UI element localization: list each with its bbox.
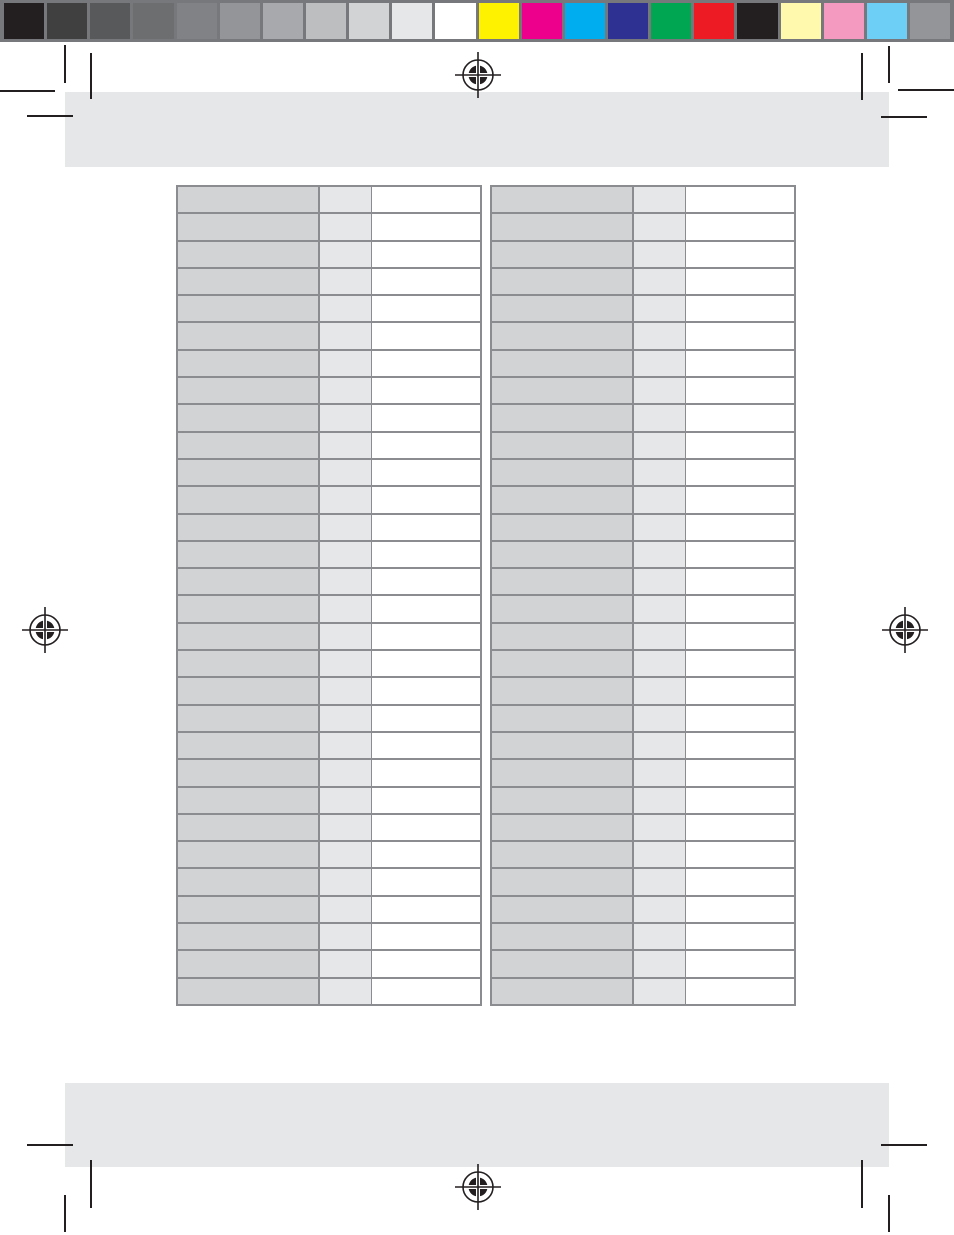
- label-column-cell: [177, 923, 319, 950]
- value-column-cell: [633, 322, 685, 349]
- value-column-cell: [633, 241, 685, 268]
- table-row: [491, 978, 795, 1005]
- label-column-cell: [491, 295, 633, 322]
- label-column-cell: [491, 322, 633, 349]
- value-column-cell: [319, 650, 371, 677]
- table-row: [177, 705, 481, 732]
- table-row: [491, 459, 795, 486]
- table-row: [177, 759, 481, 786]
- label-column-cell: [177, 978, 319, 1005]
- grayscale-swatch-gray-step-11: [435, 3, 475, 39]
- value-column-cell: [319, 459, 371, 486]
- value-column-cell: [319, 732, 371, 759]
- label-column-cell: [177, 268, 319, 295]
- value-column-cell: [319, 568, 371, 595]
- label-column-cell: [491, 677, 633, 704]
- table-row: [491, 950, 795, 977]
- entry-column-cell: [371, 541, 481, 568]
- entry-column-cell: [371, 923, 481, 950]
- table-row: [177, 322, 481, 349]
- entry-column-cell: [371, 186, 481, 213]
- value-column-cell: [633, 732, 685, 759]
- entry-column-cell: [371, 241, 481, 268]
- entry-column-cell: [371, 268, 481, 295]
- label-column-cell: [491, 923, 633, 950]
- entry-column-cell: [685, 541, 795, 568]
- table-row: [491, 268, 795, 295]
- value-column-cell: [319, 404, 371, 431]
- value-column-cell: [319, 295, 371, 322]
- crop-mark: [888, 1195, 890, 1232]
- table-row: [491, 486, 795, 513]
- entry-column-cell: [685, 186, 795, 213]
- table-row: [177, 787, 481, 814]
- table-row: [177, 568, 481, 595]
- label-column-cell: [491, 650, 633, 677]
- entry-column-cell: [685, 241, 795, 268]
- value-column-cell: [633, 377, 685, 404]
- entry-column-cell: [685, 814, 795, 841]
- entry-column-cell: [685, 732, 795, 759]
- label-column-cell: [491, 432, 633, 459]
- label-column-cell: [491, 568, 633, 595]
- table-row: [491, 677, 795, 704]
- value-column-cell: [633, 841, 685, 868]
- entry-column-cell: [371, 432, 481, 459]
- table-row: [491, 841, 795, 868]
- entry-column-cell: [685, 459, 795, 486]
- value-column-cell: [633, 213, 685, 240]
- label-column-cell: [177, 623, 319, 650]
- entry-column-cell: [371, 295, 481, 322]
- value-column-cell: [319, 322, 371, 349]
- crop-mark: [64, 45, 66, 83]
- entry-column-cell: [371, 759, 481, 786]
- entry-column-cell: [685, 787, 795, 814]
- value-column-cell: [633, 787, 685, 814]
- table-row: [177, 241, 481, 268]
- color-swatch-magenta: [522, 3, 562, 39]
- table-row: [491, 514, 795, 541]
- entry-column-cell: [685, 595, 795, 622]
- color-swatch-yellow: [479, 3, 519, 39]
- entry-column-cell: [371, 514, 481, 541]
- entry-column-cell: [685, 896, 795, 923]
- color-swatch-pink: [824, 3, 864, 39]
- table-row: [177, 978, 481, 1005]
- label-column-cell: [177, 950, 319, 977]
- crop-mark: [888, 46, 890, 83]
- value-column-cell: [319, 896, 371, 923]
- label-column-cell: [177, 541, 319, 568]
- entry-column-cell: [371, 732, 481, 759]
- crop-mark: [27, 1144, 73, 1146]
- label-column-cell: [491, 514, 633, 541]
- label-column-cell: [177, 650, 319, 677]
- measurement-table-right: [490, 185, 796, 1006]
- entry-column-cell: [685, 486, 795, 513]
- value-column-cell: [319, 868, 371, 895]
- table-row: [491, 432, 795, 459]
- registration-mark-icon-left: [21, 606, 69, 654]
- label-column-cell: [177, 732, 319, 759]
- footer-placeholder-box: [65, 1083, 889, 1167]
- table-row: [491, 377, 795, 404]
- grayscale-swatch-gray-step-4: [133, 3, 173, 39]
- label-column-cell: [177, 295, 319, 322]
- value-column-cell: [319, 950, 371, 977]
- entry-column-cell: [371, 868, 481, 895]
- label-column-cell: [491, 978, 633, 1005]
- value-column-cell: [633, 404, 685, 431]
- grayscale-swatch-gray-step-6: [220, 3, 260, 39]
- value-column-cell: [633, 459, 685, 486]
- table-row: [491, 295, 795, 322]
- value-column-cell: [319, 350, 371, 377]
- crop-mark: [861, 1160, 863, 1208]
- entry-column-cell: [371, 486, 481, 513]
- color-swatch-mid-gray: [910, 3, 950, 39]
- table-row: [491, 213, 795, 240]
- table-row: [177, 595, 481, 622]
- value-column-cell: [633, 978, 685, 1005]
- entry-column-cell: [371, 841, 481, 868]
- color-swatch-red: [694, 3, 734, 39]
- value-column-cell: [319, 705, 371, 732]
- label-column-cell: [177, 350, 319, 377]
- table-row: [177, 432, 481, 459]
- value-column-cell: [319, 514, 371, 541]
- label-column-cell: [177, 841, 319, 868]
- label-column-cell: [491, 486, 633, 513]
- entry-column-cell: [371, 213, 481, 240]
- table-row: [491, 241, 795, 268]
- label-column-cell: [491, 705, 633, 732]
- value-column-cell: [319, 841, 371, 868]
- label-column-cell: [177, 759, 319, 786]
- value-column-cell: [633, 623, 685, 650]
- table-row: [491, 705, 795, 732]
- value-column-cell: [319, 787, 371, 814]
- grayscale-swatch-gray-step-5: [177, 3, 217, 39]
- table-row: [177, 677, 481, 704]
- table-row: [177, 459, 481, 486]
- label-column-cell: [491, 841, 633, 868]
- table-row: [491, 186, 795, 213]
- label-column-cell: [491, 732, 633, 759]
- table-row: [491, 896, 795, 923]
- table-row: [491, 732, 795, 759]
- table-row: [177, 514, 481, 541]
- label-column-cell: [491, 868, 633, 895]
- label-column-cell: [177, 896, 319, 923]
- value-column-cell: [633, 295, 685, 322]
- label-column-cell: [177, 814, 319, 841]
- entry-column-cell: [685, 432, 795, 459]
- entry-column-cell: [371, 896, 481, 923]
- label-column-cell: [491, 186, 633, 213]
- entry-column-cell: [371, 459, 481, 486]
- entry-column-cell: [685, 677, 795, 704]
- value-column-cell: [633, 650, 685, 677]
- table-row: [177, 486, 481, 513]
- grayscale-swatch-gray-step-10: [392, 3, 432, 39]
- grayscale-swatch-gray-step-3: [90, 3, 130, 39]
- label-column-cell: [177, 787, 319, 814]
- label-column-cell: [491, 623, 633, 650]
- label-column-cell: [177, 486, 319, 513]
- label-column-cell: [177, 868, 319, 895]
- table-row: [177, 186, 481, 213]
- table-row: [491, 787, 795, 814]
- table-row: [177, 650, 481, 677]
- entry-column-cell: [371, 650, 481, 677]
- value-column-cell: [319, 241, 371, 268]
- entry-column-cell: [371, 787, 481, 814]
- color-swatch-pale-yellow: [781, 3, 821, 39]
- table-row: [177, 868, 481, 895]
- label-column-cell: [177, 241, 319, 268]
- value-column-cell: [633, 896, 685, 923]
- value-column-cell: [319, 923, 371, 950]
- table-row: [177, 268, 481, 295]
- value-column-cell: [633, 759, 685, 786]
- value-column-cell: [633, 350, 685, 377]
- value-column-cell: [633, 950, 685, 977]
- value-column-cell: [319, 377, 371, 404]
- label-column-cell: [177, 459, 319, 486]
- table-row: [177, 541, 481, 568]
- entry-column-cell: [685, 868, 795, 895]
- table-row: [491, 350, 795, 377]
- table-row: [491, 541, 795, 568]
- entry-column-cell: [685, 568, 795, 595]
- label-column-cell: [491, 268, 633, 295]
- entry-column-cell: [685, 950, 795, 977]
- table-row: [491, 623, 795, 650]
- label-column-cell: [491, 595, 633, 622]
- measurement-table-left: [176, 185, 482, 1006]
- label-column-cell: [491, 213, 633, 240]
- print-proof-page: [0, 0, 954, 1235]
- label-column-cell: [491, 241, 633, 268]
- color-swatch-dark-blue: [608, 3, 648, 39]
- value-column-cell: [319, 595, 371, 622]
- value-column-cell: [319, 432, 371, 459]
- blank-table-right: [490, 185, 796, 1006]
- value-column-cell: [633, 868, 685, 895]
- crop-mark: [881, 1144, 927, 1146]
- crop-mark: [90, 53, 92, 99]
- value-column-cell: [319, 814, 371, 841]
- value-column-cell: [633, 568, 685, 595]
- label-column-cell: [491, 950, 633, 977]
- table-row: [491, 595, 795, 622]
- label-column-cell: [491, 896, 633, 923]
- label-column-cell: [177, 432, 319, 459]
- crop-mark: [0, 90, 55, 92]
- entry-column-cell: [371, 595, 481, 622]
- label-column-cell: [491, 787, 633, 814]
- label-column-cell: [491, 541, 633, 568]
- table-row: [491, 322, 795, 349]
- entry-column-cell: [685, 623, 795, 650]
- registration-mark-icon-right: [881, 606, 929, 654]
- label-column-cell: [491, 404, 633, 431]
- value-column-cell: [633, 268, 685, 295]
- entry-column-cell: [685, 705, 795, 732]
- entry-column-cell: [371, 705, 481, 732]
- grayscale-swatch-gray-step-9: [349, 3, 389, 39]
- header-placeholder-box: [65, 92, 889, 167]
- entry-column-cell: [371, 677, 481, 704]
- grayscale-swatch-gray-step-2: [47, 3, 87, 39]
- table-row: [177, 732, 481, 759]
- label-column-cell: [177, 705, 319, 732]
- label-column-cell: [177, 568, 319, 595]
- value-column-cell: [319, 268, 371, 295]
- entry-column-cell: [685, 213, 795, 240]
- value-column-cell: [633, 541, 685, 568]
- table-row: [177, 623, 481, 650]
- crop-mark: [881, 116, 927, 118]
- entry-column-cell: [371, 950, 481, 977]
- entry-column-cell: [685, 759, 795, 786]
- table-row: [177, 295, 481, 322]
- table-row: [177, 213, 481, 240]
- value-column-cell: [633, 514, 685, 541]
- label-column-cell: [177, 213, 319, 240]
- value-column-cell: [633, 677, 685, 704]
- entry-column-cell: [685, 650, 795, 677]
- label-column-cell: [491, 759, 633, 786]
- entry-column-cell: [371, 568, 481, 595]
- crop-mark: [64, 1195, 66, 1232]
- registration-mark-icon-bottom: [454, 1163, 502, 1211]
- label-column-cell: [177, 677, 319, 704]
- table-row: [177, 841, 481, 868]
- entry-column-cell: [685, 350, 795, 377]
- table-row: [491, 568, 795, 595]
- value-column-cell: [633, 432, 685, 459]
- value-column-cell: [319, 978, 371, 1005]
- value-column-cell: [319, 541, 371, 568]
- entry-column-cell: [685, 923, 795, 950]
- label-column-cell: [491, 459, 633, 486]
- value-column-cell: [633, 923, 685, 950]
- value-column-cell: [319, 677, 371, 704]
- table-row: [491, 814, 795, 841]
- table-row: [491, 759, 795, 786]
- entry-column-cell: [371, 350, 481, 377]
- entry-column-cell: [371, 623, 481, 650]
- color-swatch-green: [651, 3, 691, 39]
- table-row: [177, 377, 481, 404]
- table-row: [177, 896, 481, 923]
- label-column-cell: [491, 377, 633, 404]
- table-row: [177, 923, 481, 950]
- entry-column-cell: [685, 404, 795, 431]
- value-column-cell: [633, 814, 685, 841]
- entry-column-cell: [685, 514, 795, 541]
- label-column-cell: [177, 595, 319, 622]
- table-row: [491, 404, 795, 431]
- entry-column-cell: [371, 814, 481, 841]
- entry-column-cell: [685, 322, 795, 349]
- crop-mark: [27, 115, 73, 117]
- entry-column-cell: [685, 978, 795, 1005]
- value-column-cell: [633, 705, 685, 732]
- entry-column-cell: [685, 295, 795, 322]
- table-row: [491, 650, 795, 677]
- label-column-cell: [177, 377, 319, 404]
- table-row: [491, 923, 795, 950]
- entry-column-cell: [371, 322, 481, 349]
- table-row: [491, 868, 795, 895]
- value-column-cell: [319, 486, 371, 513]
- label-column-cell: [177, 322, 319, 349]
- label-column-cell: [177, 404, 319, 431]
- value-column-cell: [319, 186, 371, 213]
- value-column-cell: [319, 759, 371, 786]
- value-column-cell: [633, 186, 685, 213]
- table-row: [177, 404, 481, 431]
- crop-mark: [898, 89, 954, 91]
- entry-column-cell: [685, 268, 795, 295]
- color-swatch-black: [737, 3, 777, 39]
- table-row: [177, 814, 481, 841]
- crop-mark: [861, 53, 863, 100]
- color-swatch-cyan: [565, 3, 605, 39]
- value-column-cell: [319, 213, 371, 240]
- label-column-cell: [177, 514, 319, 541]
- label-column-cell: [491, 350, 633, 377]
- calibration-color-bar: [0, 0, 954, 42]
- grayscale-swatch-gray-step-1: [4, 3, 44, 39]
- table-row: [177, 950, 481, 977]
- grayscale-swatch-gray-step-8: [306, 3, 346, 39]
- blank-table-left: [176, 185, 482, 1006]
- registration-mark-icon-top: [454, 51, 502, 99]
- label-column-cell: [491, 814, 633, 841]
- entry-column-cell: [371, 404, 481, 431]
- entry-column-cell: [371, 377, 481, 404]
- value-column-cell: [633, 486, 685, 513]
- label-column-cell: [177, 186, 319, 213]
- crop-mark: [90, 1160, 92, 1208]
- entry-column-cell: [685, 377, 795, 404]
- entry-column-cell: [685, 841, 795, 868]
- value-column-cell: [319, 623, 371, 650]
- table-row: [177, 350, 481, 377]
- value-column-cell: [633, 595, 685, 622]
- entry-column-cell: [371, 978, 481, 1005]
- color-swatch-light-blue: [867, 3, 907, 39]
- grayscale-swatch-gray-step-7: [263, 3, 303, 39]
